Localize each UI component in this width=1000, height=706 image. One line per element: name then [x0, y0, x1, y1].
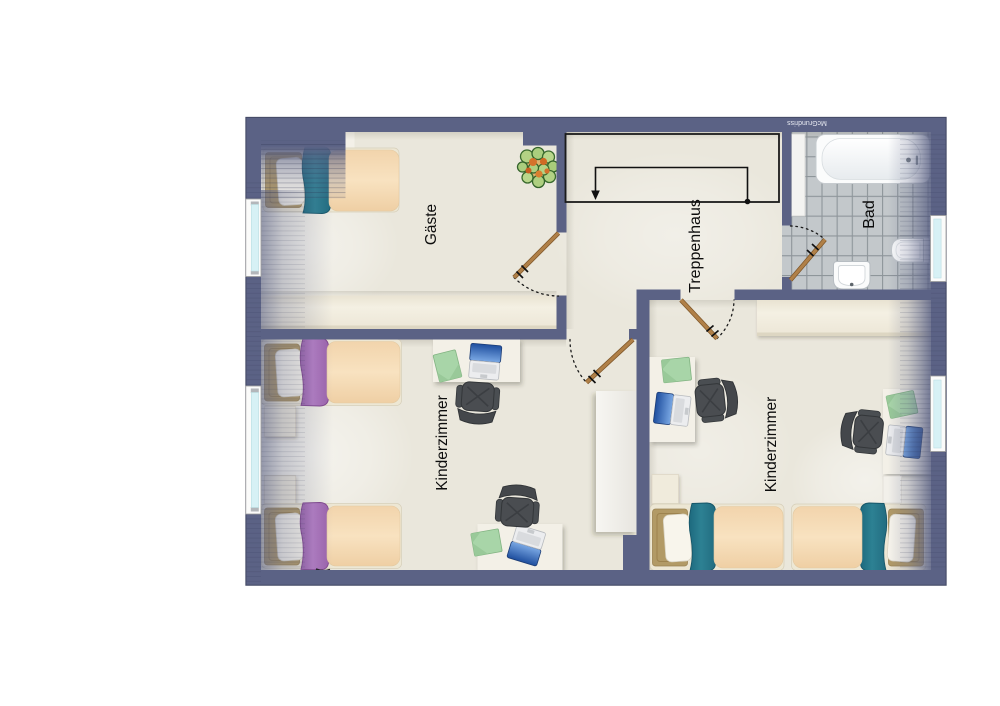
svg-text:Kinderzimmer: Kinderzimmer	[763, 397, 780, 493]
svg-text:Kinderzimmer: Kinderzimmer	[434, 395, 451, 491]
svg-text:Treppenhaus: Treppenhaus	[687, 199, 704, 293]
svg-text:Gäste: Gäste	[423, 204, 440, 245]
svg-text:Bad: Bad	[861, 200, 878, 228]
svg-text:McGrundriss: McGrundriss	[787, 119, 827, 126]
